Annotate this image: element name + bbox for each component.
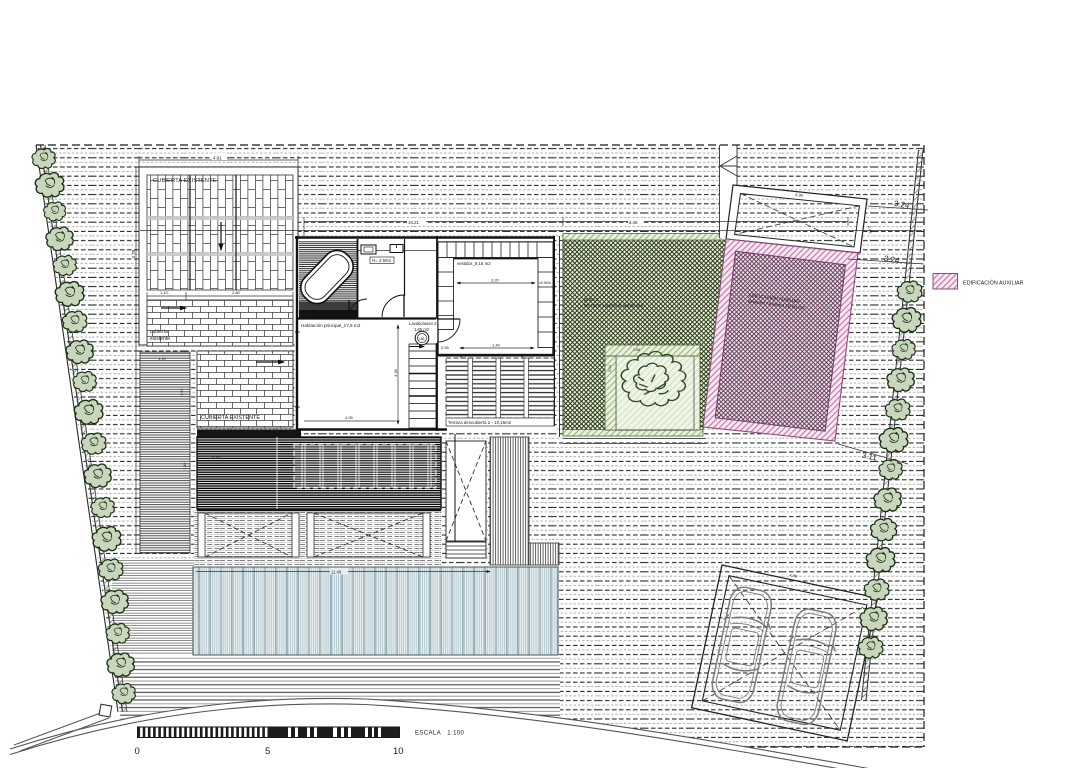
svg-text:1.10: 1.10	[158, 356, 167, 361]
svg-text:1.40: 1.40	[492, 343, 501, 348]
svg-text:2.80: 2.80	[232, 290, 241, 295]
svg-text:3.20: 3.20	[491, 278, 500, 283]
svg-text:4.38: 4.38	[393, 368, 398, 377]
svg-text:±0.50m: ±0.50m	[539, 281, 551, 285]
svg-text:0.46: 0.46	[418, 337, 425, 341]
svg-text:Lavabo/aseo 2: Lavabo/aseo 2	[409, 321, 437, 326]
svg-text:0: 0	[135, 746, 140, 757]
svg-text:TERRAZA DESCUBIERTA 1 - 38,70: TERRAZA DESCUBIERTA 1 - 38,70 m2	[199, 431, 274, 436]
svg-text:Habitación principal_17,6 m2: Habitación principal_17,6 m2	[301, 323, 361, 328]
svg-text:4.90: 4.90	[795, 192, 804, 198]
svg-text:6.46: 6.46	[629, 220, 638, 225]
svg-text:3.14: 3.14	[608, 365, 612, 372]
svg-text:cubierta: cubierta	[150, 329, 168, 335]
svg-text:4.95: 4.95	[345, 415, 354, 420]
svg-text:vestidor_9,16 m2: vestidor_9,16 m2	[457, 261, 491, 266]
svg-text:10: 10	[393, 746, 404, 757]
svg-text:1.93: 1.93	[180, 389, 184, 396]
svg-text:1.10: 1.10	[160, 290, 169, 295]
svg-text:jardin 1: jardin 1	[583, 297, 599, 302]
svg-text:1.68: 1.68	[633, 348, 640, 352]
svg-text:5.29: 5.29	[131, 249, 136, 258]
svg-text:Terraza descubierta 2 - 10,16m: Terraza descubierta 2 - 10,16m2	[448, 420, 512, 425]
svg-text:EDIFICACIÓN AUXILIAR: EDIFICACIÓN AUXILIAR	[963, 280, 1024, 287]
svg-text:16.21: 16.21	[408, 220, 420, 225]
svg-text:11.40: 11.40	[331, 570, 342, 575]
svg-text:CUBIERTA EXISTENTE: CUBIERTA EXISTENTE	[153, 178, 217, 184]
svg-text:4.91: 4.91	[213, 156, 222, 161]
svg-text:90,75m2 superficie ajardinada: 90,75m2 superficie ajardinada	[584, 303, 643, 308]
svg-text:CUBIERTA EXISTENTE: CUBIERTA EXISTENTE	[201, 415, 260, 421]
svg-text:2.10: 2.10	[212, 455, 221, 460]
svg-text:H= 2.50m: H= 2.50m	[372, 258, 392, 263]
svg-text:1.80: 1.80	[183, 463, 187, 470]
svg-text:existente: existente	[150, 336, 170, 342]
svg-text:0.95: 0.95	[441, 345, 450, 350]
svg-text:5: 5	[265, 746, 270, 757]
svg-text:ESCALA 1:100: ESCALA 1:100	[415, 731, 465, 737]
svg-text:TERRAZA DESC. 11,10 m2: TERRAZA DESC. 11,10 m2	[301, 312, 353, 317]
